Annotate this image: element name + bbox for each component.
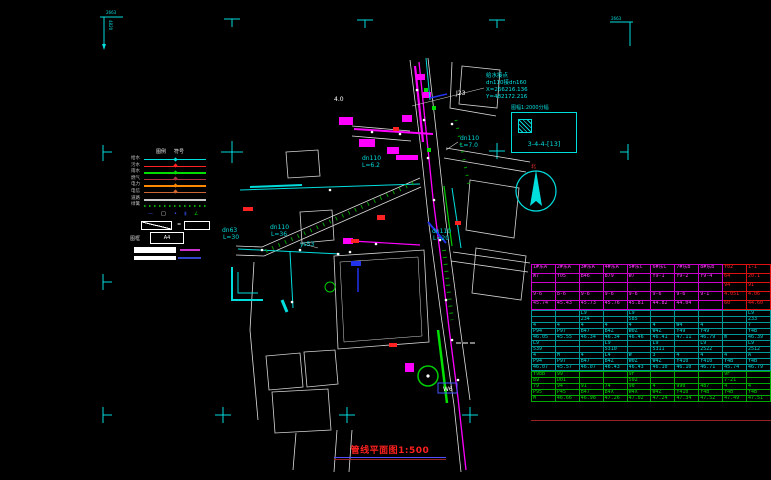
north-label: 北 xyxy=(531,163,536,170)
manholes xyxy=(261,89,460,382)
legend-symbol: • xyxy=(174,211,177,217)
legend-valve-symbol xyxy=(173,157,177,161)
frame-label: 图框 xyxy=(130,235,140,242)
legend: 图例 符号 给水 污水 雨水 燃气 电力 电信 道路 绿篱 xyxy=(128,146,242,246)
legend-symbol: □ xyxy=(161,211,166,217)
plan-drawing: 2663 4820 2663 xyxy=(0,0,771,480)
legend-row-label: 电信 xyxy=(131,189,140,195)
table-bottom-rule xyxy=(531,420,771,421)
elevation-table: 1#东A2#东A3#东A 4#东A5#东C6#东C 7#东B8#东BY02 1-… xyxy=(531,264,771,402)
legend-row: 电力 xyxy=(128,182,242,189)
cad-canvas: 2663 4820 2663 xyxy=(0,0,771,480)
table-row: 46.0745.5746.07 46.4346.4346.10 46.1046.… xyxy=(532,365,771,371)
map-label: L=6.2 xyxy=(362,162,380,169)
map-label: ys53 xyxy=(300,241,314,248)
legend-symbol: ▮ xyxy=(184,211,187,217)
legend-valve-symbol xyxy=(173,177,177,181)
legend-valve-symbol xyxy=(173,163,177,167)
drawing-title-block: 管线平面图1:500 xyxy=(334,443,446,460)
map-label: dn110 xyxy=(270,224,289,231)
tree-icon xyxy=(325,282,335,292)
corner-coordinate-label: 2663 xyxy=(611,16,622,21)
north-arrow: 北 xyxy=(516,163,556,211)
table-row: W7Y05B46 B79W7Y9-1 Y9-2Y9-464 20.1 xyxy=(532,274,771,283)
note-line: X=266216.136 xyxy=(486,87,556,94)
frame-row: 图框 A4 xyxy=(128,232,242,246)
table-row: 45.7445.4345.73 45.7645.8144.82 44.0460 … xyxy=(532,301,771,310)
title-underline xyxy=(334,459,446,460)
slope-symbol-row: = xyxy=(128,220,242,232)
table-section-ground: Y98B99 9F 9F 89D01 502 7-21 799491 74904… xyxy=(531,371,771,402)
map-label: dn110 xyxy=(432,228,451,235)
note-line: dn110接dn160 xyxy=(486,80,556,87)
roads xyxy=(236,58,530,472)
legend-row-label: 雨水 xyxy=(131,169,140,175)
corner-coordinate-label: 4820 xyxy=(108,20,113,31)
map-label: dn110 xyxy=(362,155,381,162)
map-label: dn110 xyxy=(460,135,479,142)
equals-sign: = xyxy=(177,222,181,228)
scale-bar xyxy=(134,247,176,253)
map-label: J23 xyxy=(455,90,466,97)
table-row: 1#东A2#东A3#东A 4#东A5#东C6#东C 7#东B8#东BY02 1-… xyxy=(532,265,771,274)
map-label: W6 xyxy=(443,386,453,393)
legend-header-label: 图例 xyxy=(156,148,166,155)
map-label: L=7.0 xyxy=(460,142,478,149)
table-row: 94 91 xyxy=(532,283,771,292)
slope-parallelogram-icon xyxy=(141,221,172,230)
table-section-existing: 1#东A2#东A3#东A 4#东A5#东C6#东C 7#东B8#东BY02 1-… xyxy=(531,264,771,310)
hatched-cell-icon xyxy=(518,119,532,133)
legend-rows: 给水 污水 雨水 燃气 电力 电信 道路 绿篱 xyxy=(128,156,242,209)
legend-header-label: 符号 xyxy=(174,148,184,155)
sheet-index-box: 图幅1:2000分幅 3-4-4-[13] xyxy=(511,104,577,153)
legend-row: 燃气 xyxy=(128,176,242,183)
index-frame: 3-4-4-[13] xyxy=(511,112,577,153)
table-row: M46.6646.98 47.2647.0247.24 47.3447.5247… xyxy=(532,396,771,402)
legend-valve-symbol xyxy=(173,183,177,187)
legend-row-label: 给水 xyxy=(131,156,140,162)
blue-sample-line xyxy=(178,257,201,259)
legend-row-label: 燃气 xyxy=(131,176,140,182)
map-label: L=36 xyxy=(271,231,287,238)
legend-symbol: ∠ xyxy=(194,211,198,217)
title-underline xyxy=(334,457,446,458)
magenta-sample-line xyxy=(180,249,200,251)
legend-row-label: 电力 xyxy=(131,182,140,188)
legend-row-label: 绿篱 xyxy=(131,202,140,208)
legend-valve-symbol xyxy=(173,170,177,174)
index-caption: 图幅1:2000分幅 xyxy=(511,104,577,111)
table-row: 9-68-69-6 9-69-69-6 9-69-14.051 4.06 xyxy=(532,292,771,301)
map-label: L=20 xyxy=(433,235,449,242)
legend-row-label: 污水 xyxy=(131,163,140,169)
legend-valve-symbol xyxy=(173,190,177,194)
table-section-design: L9 L9 L9 234 585 233 444 444 W44 7 P94P9… xyxy=(531,310,771,371)
note-line: Y=482172.216 xyxy=(486,94,556,101)
legend-row: 给水 xyxy=(128,156,242,163)
drawing-title: 管线平面图1:500 xyxy=(334,443,446,456)
connection-note: 给水接点 dn110接dn160 X=266216.136 Y=482172.2… xyxy=(486,73,556,101)
legend-row: 电信 xyxy=(128,189,242,196)
legend-symbol: — xyxy=(148,211,153,217)
legend-symbols-row: — □ • ▮ ∠ xyxy=(128,211,242,218)
scale-bar xyxy=(134,256,176,260)
legend-row: 雨水 xyxy=(128,169,242,176)
frame-size-box: A4 xyxy=(150,232,184,244)
corner-coordinate-label: 2663 xyxy=(106,10,117,15)
sheet-number: 3-4-4-[13] xyxy=(512,140,576,148)
slope-box-icon xyxy=(184,221,210,230)
legend-row: 道路 xyxy=(128,196,242,203)
legend-row: 绿篱 xyxy=(128,202,242,209)
legend-row-label: 道路 xyxy=(131,196,140,202)
legend-header: 图例 符号 xyxy=(128,146,242,156)
legend-row: 污水 xyxy=(128,163,242,170)
map-label: 4.0 xyxy=(334,96,344,103)
buildings xyxy=(266,66,526,433)
corner-arrow-icon xyxy=(102,44,106,50)
note-line: 给水接点 xyxy=(486,73,556,80)
